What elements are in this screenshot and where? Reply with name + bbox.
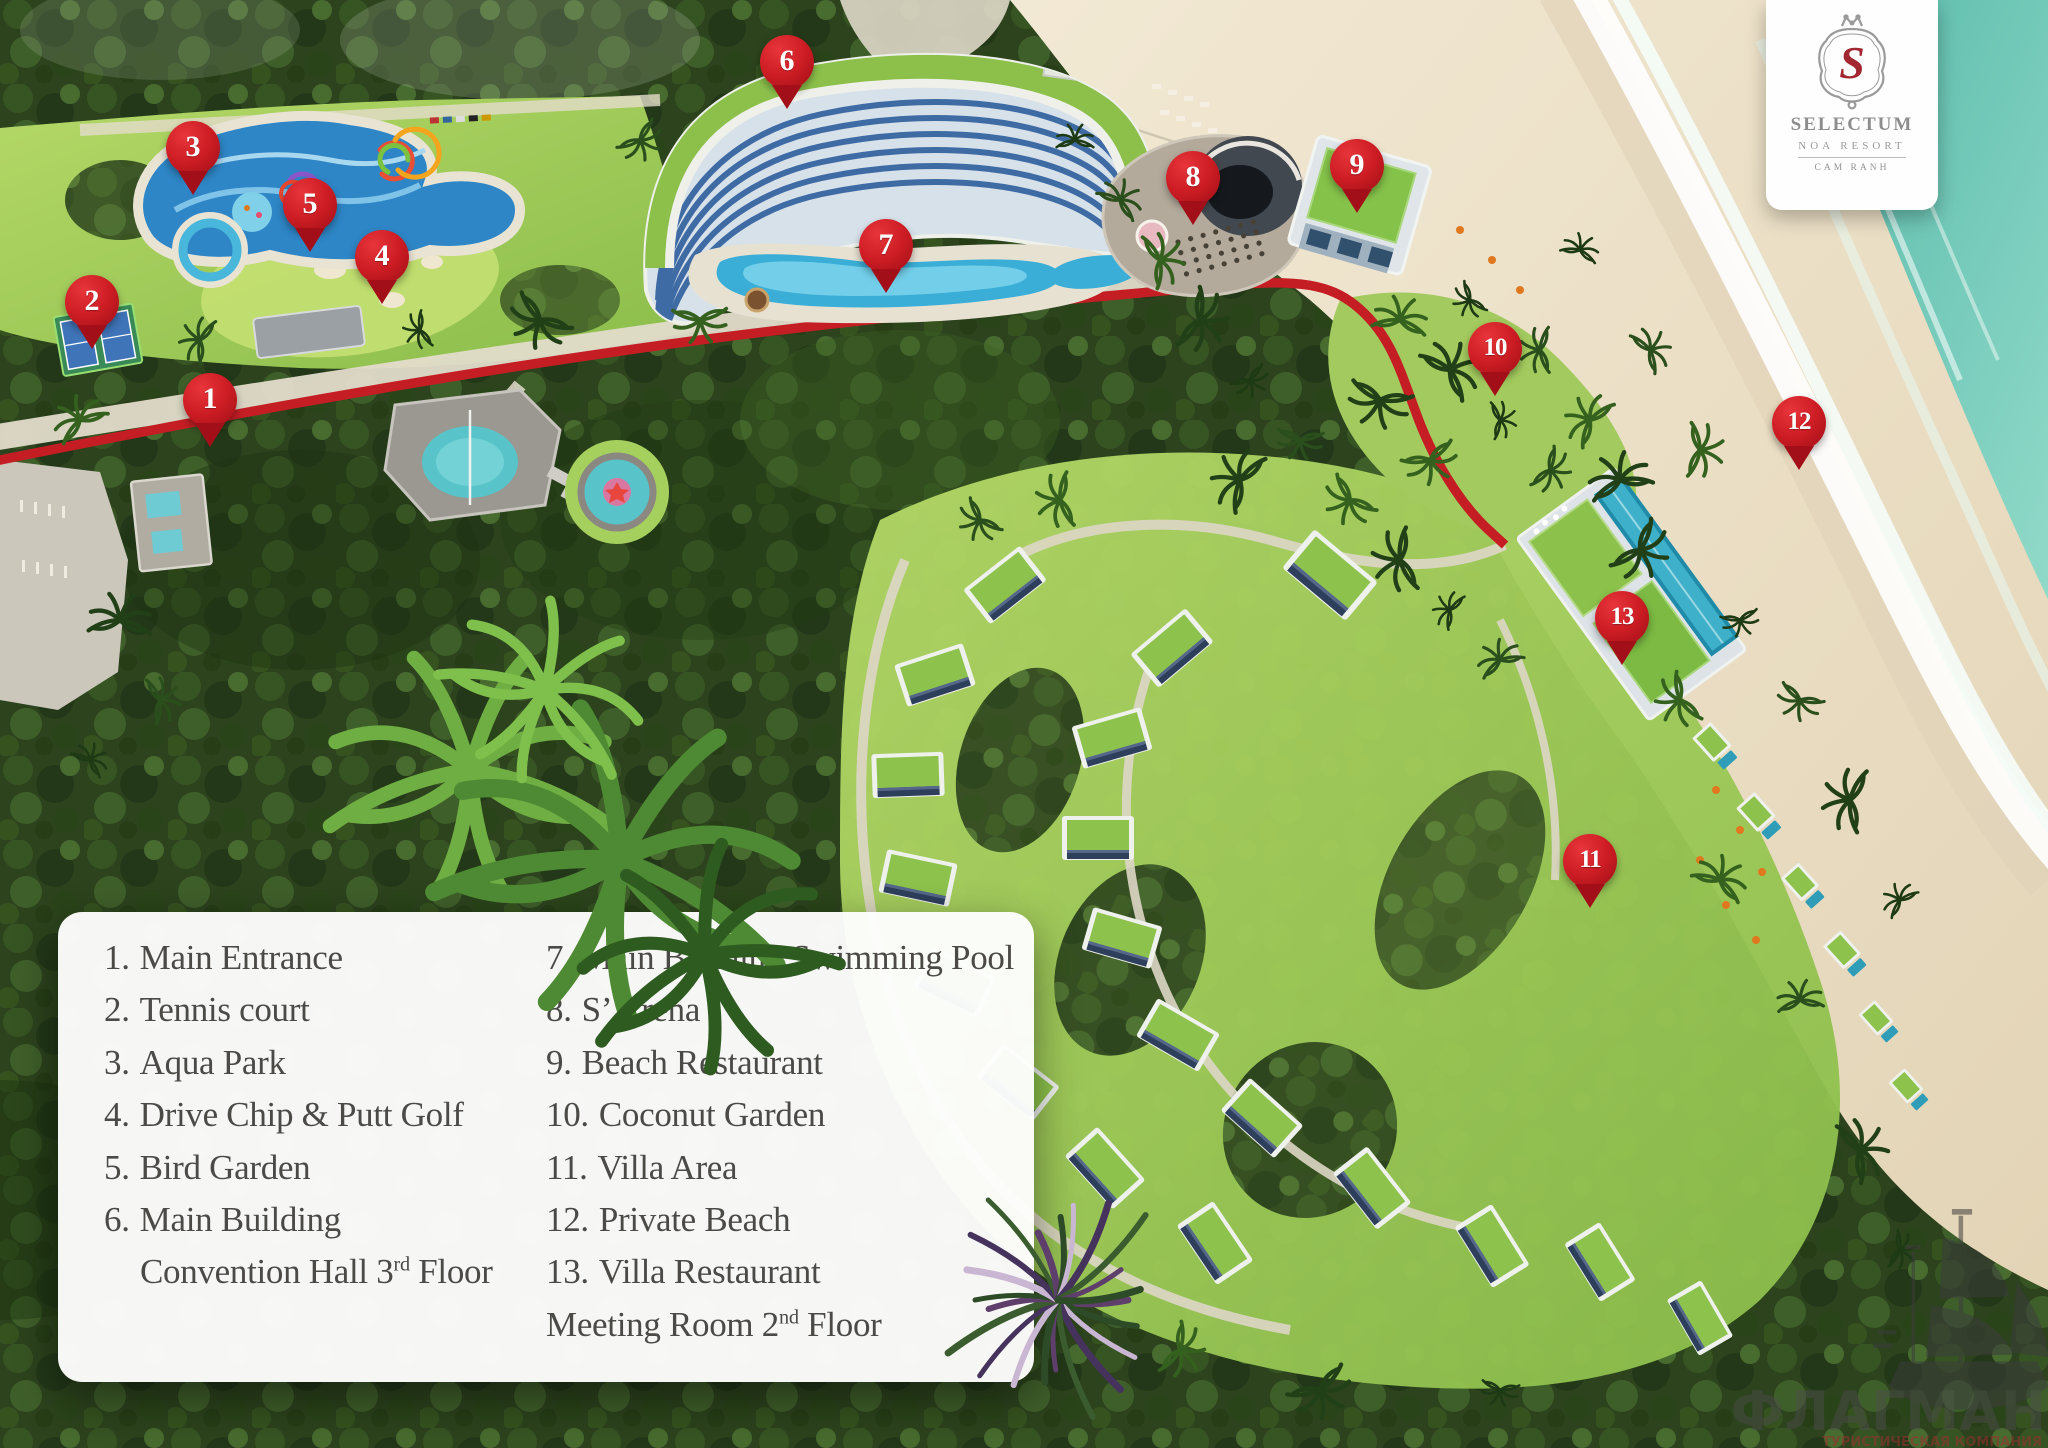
legend-column-right: 7.Main Building Swimming Pool8.S’ Arena9…: [546, 932, 1014, 1351]
legend-item-3: 3.Aqua Park: [104, 1037, 493, 1089]
legend-item-6: 6.Main Building: [104, 1194, 493, 1246]
resort-location: CAM RANH: [1815, 163, 1890, 173]
map-pin-number: 5: [303, 189, 318, 222]
map-pin-number: 11: [1579, 847, 1601, 875]
legend-item-5: 5.Bird Garden: [104, 1142, 493, 1194]
map-pin-9[interactable]: 9: [1330, 139, 1384, 193]
legend-item-4: 4.Drive Chip & Putt Golf: [104, 1089, 493, 1141]
legend-item-9: 9.Beach Restaurant: [546, 1037, 1014, 1089]
legend-item-continuation: Convention Hall 3rd Floor: [104, 1246, 493, 1298]
map-pin-number: 10: [1484, 335, 1507, 363]
resort-logo-card: S SELECTUM NOA RESORT CAM RANH: [1766, 0, 1938, 210]
legend-item-10: 10.Coconut Garden: [546, 1089, 1014, 1141]
map-pin-number: 2: [85, 286, 100, 319]
map-pin-number: 3: [186, 132, 201, 165]
map-pin-number: 1: [203, 384, 218, 417]
map-pin-11[interactable]: 11: [1563, 834, 1617, 888]
map-pin-number: 7: [879, 230, 894, 263]
map-pin-3[interactable]: 3: [166, 121, 220, 175]
legend-card: 1.Main Entrance2.Tennis court3.Aqua Park…: [58, 912, 1034, 1382]
map-pin-1[interactable]: 1: [183, 373, 237, 427]
resort-subtitle: NOA RESORT: [1798, 140, 1906, 158]
map-pin-12[interactable]: 12: [1772, 396, 1826, 450]
legend-item-7: 7.Main Building Swimming Pool: [546, 932, 1014, 984]
resort-map-stage: ФЛАГМАН ТУРИСТИЧЕСКАЯ КОМПАНИЯ 123456789…: [0, 0, 2048, 1448]
resort-crest-icon: S: [1808, 14, 1896, 112]
legend-item-11: 11.Villa Area: [546, 1142, 1014, 1194]
map-pin-4[interactable]: 4: [355, 230, 409, 284]
legend-item-continuation: Meeting Room 2nd Floor: [546, 1299, 1014, 1351]
legend-item-2: 2.Tennis court: [104, 984, 493, 1036]
map-pin-number: 8: [1186, 162, 1201, 195]
resort-name: SELECTUM: [1791, 114, 1914, 136]
legend-item-12: 12.Private Beach: [546, 1194, 1014, 1246]
map-pin-7[interactable]: 7: [859, 219, 913, 273]
map-pin-number: 12: [1788, 409, 1811, 437]
legend-column-left: 1.Main Entrance2.Tennis court3.Aqua Park…: [104, 932, 493, 1299]
map-pin-8[interactable]: 8: [1166, 151, 1220, 205]
map-pin-number: 6: [780, 46, 795, 79]
map-pin-number: 13: [1611, 604, 1634, 632]
legend-item-13: 13.Villa Restaurant: [546, 1246, 1014, 1298]
map-pin-number: 9: [1350, 150, 1365, 183]
map-pin-6[interactable]: 6: [760, 35, 814, 89]
logo-monogram: S: [1839, 37, 1865, 88]
legend-item-1: 1.Main Entrance: [104, 932, 493, 984]
map-pin-13[interactable]: 13: [1595, 591, 1649, 645]
map-pin-2[interactable]: 2: [65, 275, 119, 329]
map-pin-10[interactable]: 10: [1468, 322, 1522, 376]
map-pin-number: 4: [375, 241, 390, 274]
map-pin-5[interactable]: 5: [283, 178, 337, 232]
legend-item-8: 8.S’ Arena: [546, 984, 1014, 1036]
